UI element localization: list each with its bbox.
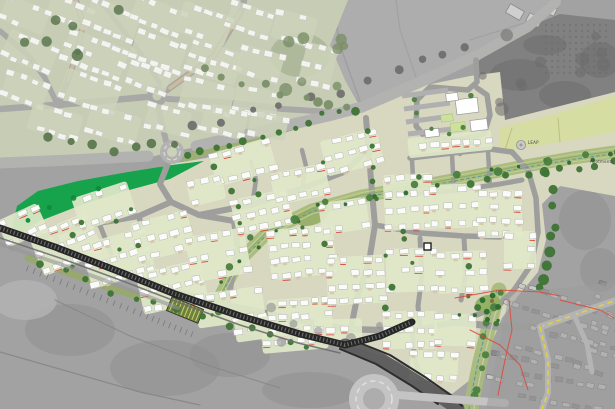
- orchard-dot: [575, 36, 577, 38]
- house: [383, 342, 390, 348]
- housing-block: [428, 183, 482, 230]
- orchard-dot: [605, 30, 607, 32]
- house: [304, 255, 311, 260]
- orchard-dot: [551, 42, 553, 44]
- tree: [371, 165, 376, 170]
- tree: [290, 320, 298, 328]
- house: [229, 289, 237, 296]
- house: [410, 350, 418, 356]
- house: [439, 286, 446, 292]
- house: [502, 218, 511, 224]
- house: [352, 284, 360, 289]
- house: [478, 191, 487, 197]
- house: [436, 253, 444, 258]
- tree: [275, 102, 282, 109]
- house: [340, 257, 347, 263]
- masterplan-screenshot: LEAP Allotments: [0, 0, 615, 409]
- orchard-dot: [593, 60, 595, 62]
- house: [357, 132, 365, 139]
- tree: [395, 65, 404, 74]
- tree: [250, 107, 256, 113]
- orchard-dot: [575, 30, 577, 32]
- house: [327, 168, 335, 174]
- tree: [87, 140, 97, 150]
- tree: [453, 171, 461, 179]
- orchard-dot: [587, 42, 589, 44]
- tree: [382, 304, 389, 311]
- orchard-dot: [563, 48, 565, 50]
- house: [431, 286, 439, 291]
- tree: [257, 245, 261, 249]
- house: [323, 229, 330, 235]
- tree: [255, 191, 261, 197]
- orchard-dot: [545, 72, 547, 74]
- sports-pitch: [441, 114, 454, 122]
- tree: [237, 259, 241, 263]
- house: [423, 175, 432, 181]
- house: [419, 143, 427, 150]
- tree: [319, 111, 324, 116]
- house: [290, 300, 298, 305]
- marsh-blob: [559, 190, 611, 250]
- house: [527, 246, 535, 251]
- house: [363, 257, 372, 262]
- house: [210, 233, 219, 240]
- house: [463, 252, 472, 257]
- house: [292, 242, 300, 247]
- orchard-dot: [557, 42, 559, 44]
- house: [490, 217, 497, 222]
- house: [417, 341, 424, 348]
- garden-wall: [385, 231, 391, 232]
- tree: [591, 32, 600, 41]
- tree: [188, 121, 197, 130]
- orchard-dot: [557, 72, 559, 74]
- house: [434, 313, 443, 319]
- house: [503, 263, 512, 269]
- tree: [262, 80, 270, 88]
- tree: [466, 263, 472, 269]
- house: [413, 223, 420, 229]
- house: [376, 270, 385, 276]
- house: [418, 328, 425, 333]
- house: [281, 243, 289, 248]
- tree: [239, 81, 245, 87]
- house: [217, 270, 227, 277]
- garden-wall: [430, 194, 436, 195]
- house: [437, 351, 444, 357]
- house: [306, 268, 314, 274]
- tree: [114, 219, 119, 224]
- house: [338, 284, 347, 289]
- tree: [324, 100, 334, 110]
- house: [466, 287, 474, 293]
- orchard-dot: [587, 36, 589, 38]
- house: [282, 204, 290, 210]
- tree: [297, 77, 306, 86]
- house: [385, 192, 393, 199]
- employment-building: [470, 119, 488, 132]
- tree: [135, 243, 141, 249]
- tree: [297, 32, 309, 44]
- orchard-dot: [587, 72, 589, 74]
- tree: [117, 247, 121, 251]
- tree: [226, 143, 232, 149]
- tree: [384, 253, 388, 257]
- orchard-dot: [563, 24, 565, 26]
- house: [270, 258, 280, 265]
- orchard-dot: [545, 42, 547, 44]
- house: [424, 352, 433, 358]
- tree: [218, 74, 225, 81]
- garden-wall: [279, 321, 287, 322]
- house: [417, 286, 424, 291]
- employment-building: [446, 92, 459, 101]
- tree: [468, 93, 474, 99]
- orchard-dot: [593, 72, 595, 74]
- orchard-dot: [569, 72, 571, 74]
- house: [243, 266, 253, 273]
- orchard-dot: [581, 24, 583, 26]
- house: [417, 312, 424, 317]
- tree: [336, 89, 345, 98]
- orchard-dot: [563, 30, 565, 32]
- house: [142, 220, 151, 226]
- house: [478, 231, 486, 237]
- house: [400, 248, 409, 254]
- garden-wall: [363, 263, 371, 264]
- house: [278, 301, 287, 306]
- tree: [217, 119, 225, 127]
- tree: [351, 107, 360, 116]
- tree: [438, 51, 446, 59]
- orchard-dot: [563, 66, 565, 68]
- house: [480, 285, 489, 291]
- tree: [114, 5, 124, 15]
- tree: [365, 128, 371, 134]
- house: [410, 174, 417, 179]
- house: [363, 269, 372, 275]
- housing-block: [325, 254, 388, 306]
- garden-wall: [326, 335, 334, 336]
- tree: [575, 67, 586, 78]
- tree: [266, 303, 276, 313]
- tree: [414, 111, 419, 116]
- tree: [576, 166, 582, 172]
- orchard-dot: [563, 42, 565, 44]
- tree: [493, 321, 499, 327]
- house: [431, 221, 438, 227]
- orchard-dot: [545, 48, 547, 50]
- tree: [419, 55, 427, 63]
- house: [294, 169, 302, 175]
- tree: [134, 296, 139, 301]
- house: [415, 249, 424, 255]
- orchard-dot: [551, 60, 553, 62]
- orchard-dot: [599, 30, 601, 32]
- tree: [546, 232, 555, 241]
- play-area-centre: [520, 144, 523, 147]
- tree: [447, 132, 452, 137]
- house: [491, 231, 498, 236]
- tree: [461, 43, 469, 51]
- house: [451, 139, 461, 145]
- orchard-dot: [545, 30, 547, 32]
- house: [248, 87, 258, 93]
- tree: [51, 15, 61, 25]
- housing-block: [503, 231, 536, 270]
- tree: [544, 157, 553, 166]
- house: [258, 208, 266, 215]
- orchard-dot: [575, 48, 577, 50]
- housing-block: [382, 173, 436, 233]
- tree: [228, 188, 235, 195]
- tree: [210, 163, 217, 170]
- tree: [501, 29, 513, 41]
- tree: [68, 22, 77, 31]
- tree: [473, 313, 477, 317]
- orchard-dot: [569, 54, 571, 56]
- tree: [304, 94, 310, 100]
- house: [435, 270, 445, 275]
- orchard-dot: [545, 66, 547, 68]
- house: [353, 298, 363, 304]
- tree: [480, 297, 486, 303]
- park-feature: [490, 299, 494, 303]
- play-area-label: LEAP: [528, 141, 539, 145]
- house: [280, 256, 289, 263]
- house: [441, 142, 450, 147]
- tree: [67, 138, 74, 145]
- tree: [275, 229, 278, 232]
- tree: [322, 199, 329, 206]
- house: [384, 177, 391, 183]
- orchard-dot: [599, 42, 601, 44]
- house: [154, 304, 162, 311]
- tree: [608, 152, 613, 157]
- tree: [71, 195, 77, 201]
- garden-wall: [400, 255, 408, 256]
- tree: [548, 202, 556, 210]
- orchard-dot: [557, 36, 559, 38]
- house: [362, 222, 371, 229]
- house: [399, 224, 406, 230]
- tree: [79, 220, 84, 225]
- tree: [596, 48, 607, 59]
- main-road: [0, 156, 148, 163]
- garden-wall: [328, 306, 336, 307]
- house: [206, 295, 215, 301]
- house: [341, 326, 349, 331]
- tree: [482, 351, 489, 358]
- house: [459, 204, 466, 209]
- tree: [47, 205, 52, 210]
- house: [326, 271, 333, 276]
- tree: [461, 125, 466, 130]
- house: [302, 242, 310, 248]
- tree: [556, 165, 563, 172]
- house: [384, 224, 392, 229]
- garden-wall: [385, 199, 391, 200]
- house: [222, 230, 231, 236]
- tree: [416, 174, 422, 180]
- orchard-dot: [593, 54, 595, 56]
- house: [382, 312, 391, 317]
- orchard-dot: [581, 42, 583, 44]
- marsh-blob: [262, 372, 358, 408]
- house: [473, 139, 480, 145]
- garden-wall: [278, 307, 286, 308]
- tree: [412, 97, 417, 102]
- tree: [343, 104, 350, 111]
- garden-wall: [467, 348, 475, 349]
- tree: [247, 234, 253, 240]
- substation-marker: [424, 243, 431, 250]
- house: [458, 186, 467, 192]
- house: [451, 352, 459, 358]
- house: [514, 205, 522, 210]
- house: [490, 204, 499, 209]
- house: [237, 227, 245, 234]
- orchard-dot: [587, 48, 589, 50]
- tree: [535, 57, 546, 68]
- house: [459, 220, 466, 225]
- orchard-dot: [569, 66, 571, 68]
- orchard-dot: [569, 42, 571, 44]
- orchard-dot: [593, 24, 595, 26]
- tree: [410, 261, 414, 265]
- tree: [321, 241, 327, 247]
- tree: [252, 178, 256, 182]
- house: [396, 192, 404, 197]
- tree: [279, 83, 292, 96]
- house: [451, 288, 458, 293]
- garden-wall: [414, 273, 422, 274]
- tree: [337, 109, 342, 114]
- house: [333, 203, 341, 209]
- house: [241, 110, 249, 117]
- orchard-dot: [593, 66, 595, 68]
- house: [279, 54, 287, 61]
- tree: [201, 64, 209, 72]
- garden-wall: [423, 182, 431, 183]
- house: [283, 171, 290, 177]
- orchard-dot: [587, 24, 589, 26]
- tree: [567, 161, 571, 165]
- tree: [200, 313, 206, 319]
- house: [266, 231, 275, 237]
- tree: [313, 97, 323, 107]
- housing-block: [433, 313, 476, 349]
- house: [397, 208, 406, 215]
- house: [263, 341, 271, 346]
- house: [529, 233, 536, 239]
- tree: [582, 151, 589, 158]
- orchard-dot: [581, 36, 583, 38]
- house: [269, 245, 277, 252]
- house: [325, 311, 333, 316]
- house: [411, 206, 419, 212]
- house: [365, 283, 374, 288]
- house: [319, 268, 326, 273]
- tree: [196, 147, 204, 155]
- house: [395, 313, 402, 318]
- house: [185, 238, 193, 244]
- tree: [495, 98, 504, 107]
- housing-block: [435, 250, 489, 296]
- orchard-dot: [551, 66, 553, 68]
- tree: [239, 137, 247, 145]
- house: [300, 300, 308, 306]
- house: [239, 247, 248, 253]
- orchard-dot: [575, 24, 577, 26]
- orchard-dot: [545, 54, 547, 56]
- tree: [333, 82, 342, 91]
- tree: [184, 152, 191, 159]
- house: [430, 142, 440, 148]
- orchard-dot: [563, 72, 565, 74]
- house: [385, 208, 393, 214]
- orchard-dot: [551, 54, 553, 56]
- house: [407, 311, 414, 317]
- house: [365, 297, 373, 303]
- tree: [542, 170, 550, 178]
- house: [505, 233, 514, 239]
- masterplan-map: [0, 0, 615, 409]
- orchard-dot: [551, 72, 553, 74]
- roundabout-island: [167, 147, 177, 157]
- tree: [147, 139, 157, 149]
- tree: [305, 120, 312, 127]
- house: [451, 253, 460, 259]
- tree: [467, 180, 475, 188]
- tree: [132, 142, 141, 151]
- house: [215, 107, 223, 114]
- garden-wall: [341, 333, 348, 334]
- house: [282, 117, 290, 124]
- tree: [485, 317, 490, 322]
- tree: [82, 276, 88, 282]
- orchard-dot: [545, 36, 547, 38]
- orchard-dot: [569, 30, 571, 32]
- tree: [43, 132, 52, 141]
- orchard-dot: [563, 36, 565, 38]
- garden-wall: [312, 304, 318, 305]
- tree: [69, 232, 75, 238]
- tree: [276, 129, 282, 135]
- house: [351, 269, 359, 275]
- house: [410, 190, 417, 197]
- house: [479, 252, 486, 258]
- orchard-dot: [545, 24, 547, 26]
- tree: [316, 203, 320, 207]
- tree: [20, 38, 29, 47]
- tree: [238, 221, 242, 225]
- house: [450, 375, 457, 380]
- garden-wall: [326, 278, 332, 279]
- house: [278, 314, 287, 319]
- tree: [109, 147, 118, 156]
- garden-wall: [413, 231, 419, 232]
- house: [315, 226, 322, 232]
- tree: [479, 72, 487, 80]
- tree: [484, 176, 491, 183]
- house: [314, 63, 322, 70]
- house: [226, 250, 235, 256]
- tree: [283, 36, 294, 47]
- tree: [226, 263, 233, 270]
- house: [527, 263, 534, 268]
